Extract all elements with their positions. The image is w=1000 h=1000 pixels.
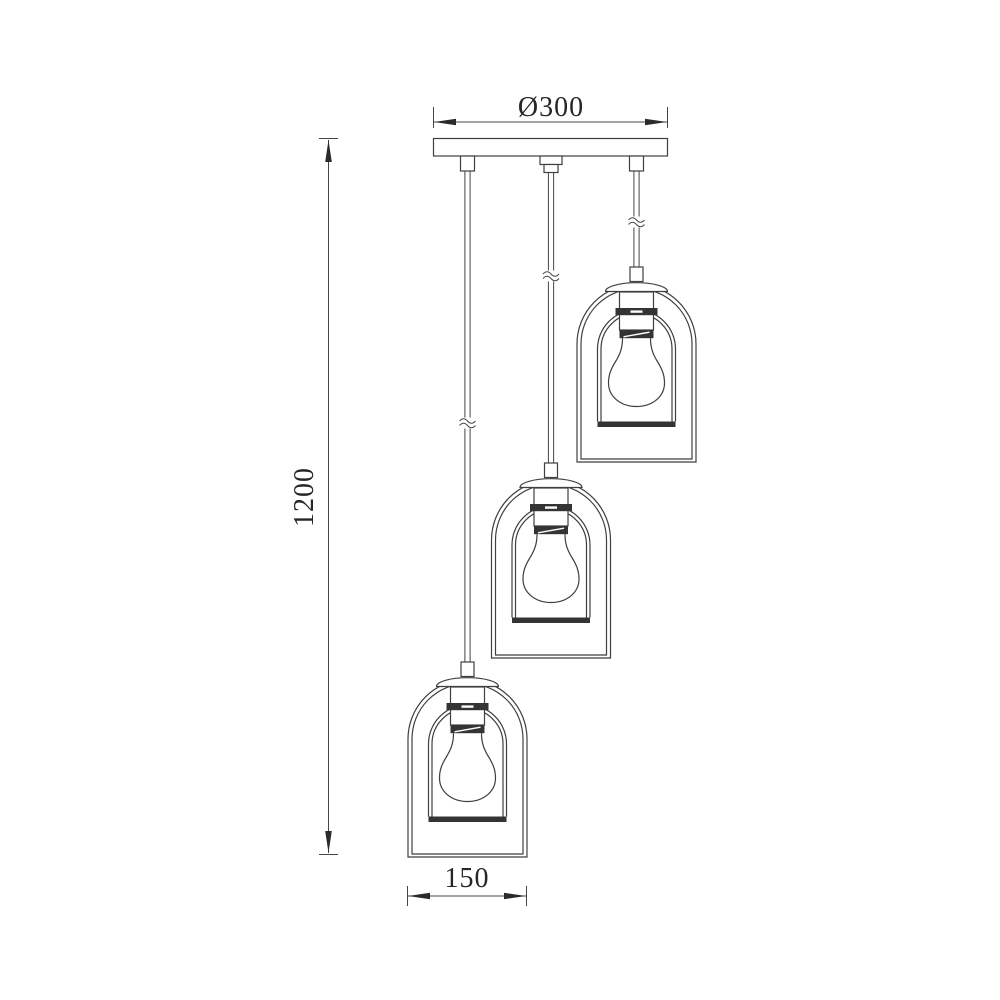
suspension-cord-left bbox=[459, 171, 477, 664]
pendant-lamp-bottom bbox=[408, 662, 527, 857]
ceiling-canopy bbox=[434, 139, 668, 173]
suspension-cord-right bbox=[628, 171, 646, 269]
dimension-arrow-right bbox=[645, 119, 667, 125]
pendant-lamp-middle bbox=[492, 463, 611, 658]
dimension-arrow-up bbox=[325, 140, 332, 162]
pendant-lamp-dimension-drawing: Ø300 1200 150 bbox=[0, 0, 1000, 1000]
cord-grip-left bbox=[461, 156, 475, 171]
dimension-label-height: 1200 bbox=[289, 467, 320, 527]
dimension-label-width: 150 bbox=[445, 863, 490, 894]
dimension-overall-height: 1200 bbox=[289, 139, 338, 855]
dimension-label-diameter: Ø300 bbox=[518, 92, 584, 123]
canopy-plate bbox=[434, 139, 668, 157]
cord-grip-center-collar bbox=[540, 156, 562, 165]
cord-grip-right bbox=[630, 156, 644, 171]
dimension-arrow-down bbox=[325, 831, 332, 853]
dimension-shade-width: 150 bbox=[408, 863, 527, 906]
dimension-arrow-left bbox=[408, 893, 430, 899]
dimension-arrow-left bbox=[434, 119, 456, 125]
dimension-canopy-diameter: Ø300 bbox=[434, 92, 668, 128]
cord-grip-center bbox=[544, 165, 558, 173]
technical-drawing-page: Ø300 1200 150 bbox=[0, 0, 1000, 1000]
pendant-lamp-top bbox=[577, 267, 696, 462]
dimension-arrow-right bbox=[504, 893, 526, 899]
suspension-cord-center bbox=[542, 173, 560, 466]
